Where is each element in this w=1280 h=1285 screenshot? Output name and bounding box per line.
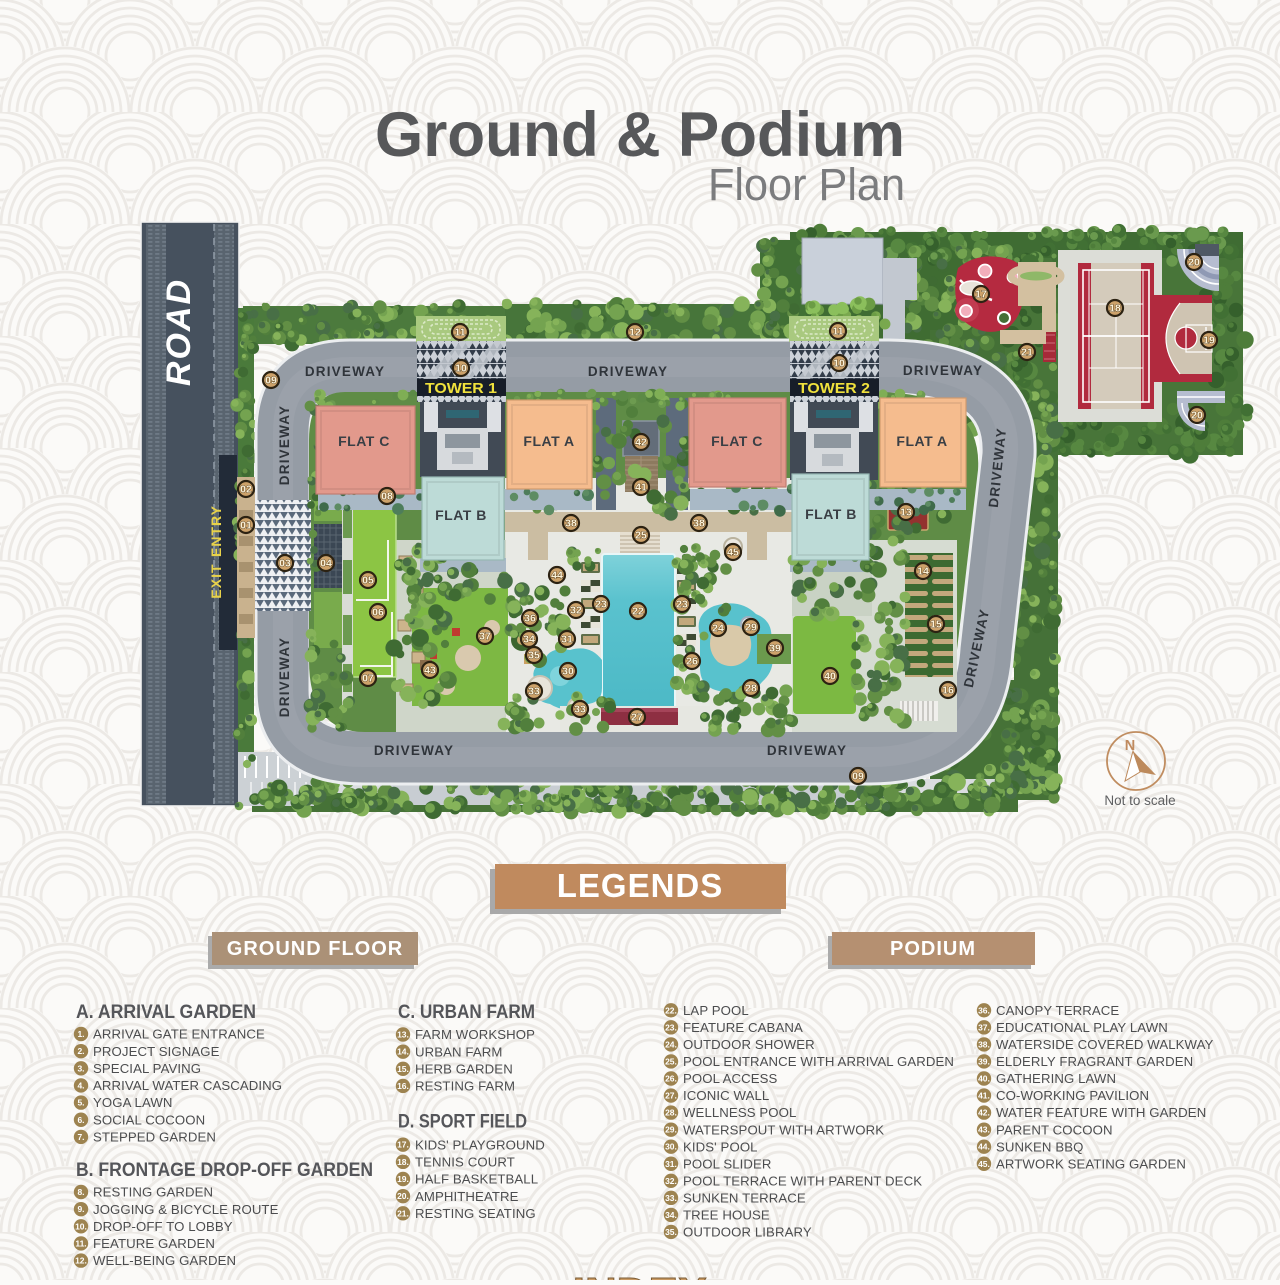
svg-text:GATHERING LAWN: GATHERING LAWN [996,1071,1116,1086]
svg-text:TREE HOUSE: TREE HOUSE [683,1208,770,1223]
svg-text:PARENT COCOON: PARENT COCOON [996,1122,1113,1137]
svg-text:EXIT: EXIT [208,563,224,598]
svg-text:ELDERLY FRAGRANT GARDEN: ELDERLY FRAGRANT GARDEN [996,1054,1193,1069]
svg-text:33: 33 [574,704,586,716]
svg-text:41.: 41. [978,1091,990,1101]
svg-text:ENTRY: ENTRY [208,505,224,557]
svg-text:33: 33 [528,686,540,698]
svg-text:41: 41 [635,482,647,494]
svg-text:28.: 28. [665,1108,677,1118]
svg-text:POOL SLIDER: POOL SLIDER [683,1156,772,1171]
svg-text:38.: 38. [978,1039,990,1049]
svg-text:27: 27 [631,712,643,724]
svg-text:WELLNESS POOL: WELLNESS POOL [683,1105,796,1120]
svg-text:ARRIVAL GATE ENTRANCE: ARRIVAL GATE ENTRANCE [93,1027,265,1042]
svg-text:B. FRONTAGE DROP-OFF GARDEN: B. FRONTAGE DROP-OFF GARDEN [76,1159,373,1181]
svg-text:HERB GARDEN: HERB GARDEN [415,1061,513,1076]
svg-text:FLAT B: FLAT B [805,506,857,522]
svg-text:30.: 30. [665,1142,677,1152]
svg-text:26.: 26. [665,1074,677,1084]
svg-text:KIDS' POOL: KIDS' POOL [683,1139,758,1154]
svg-text:42: 42 [635,437,647,449]
svg-text:FLAT A: FLAT A [896,433,947,449]
svg-text:22.: 22. [665,1005,677,1015]
svg-text:42.: 42. [978,1108,990,1118]
svg-text:13.: 13. [397,1030,409,1040]
svg-text:10: 10 [833,358,845,370]
svg-text:1.: 1. [77,1029,84,1039]
svg-text:19.: 19. [397,1174,409,1184]
svg-text:31.: 31. [665,1159,677,1169]
svg-text:DRIVEWAY: DRIVEWAY [277,637,292,717]
svg-text:POOL TERRACE WITH PARENT DECK: POOL TERRACE WITH PARENT DECK [683,1173,922,1188]
svg-text:17: 17 [975,289,987,301]
svg-text:KIDS' PLAYGROUND: KIDS' PLAYGROUND [415,1137,545,1152]
svg-text:PODIUM: PODIUM [890,938,976,960]
svg-text:WATERSPOUT WITH ARTWORK: WATERSPOUT WITH ARTWORK [683,1122,884,1137]
svg-text:36.: 36. [978,1005,990,1015]
svg-text:44: 44 [551,570,563,582]
svg-text:32.: 32. [665,1176,677,1186]
svg-text:21: 21 [1021,347,1033,359]
svg-text:45: 45 [727,547,739,559]
svg-text:SUNKEN TERRACE: SUNKEN TERRACE [683,1190,806,1205]
svg-text:PROJECT SIGNAGE: PROJECT SIGNAGE [93,1044,220,1059]
svg-text:28: 28 [745,683,757,695]
svg-text:23.: 23. [665,1022,677,1032]
svg-text:Not to scale: Not to scale [1104,793,1175,808]
svg-text:09: 09 [852,771,864,783]
svg-text:16.: 16. [397,1081,409,1091]
svg-text:DRIVEWAY: DRIVEWAY [903,363,983,378]
svg-text:HALF BASKETBALL: HALF BASKETBALL [415,1172,538,1187]
svg-text:37.: 37. [978,1022,990,1032]
svg-text:DRIVEWAY: DRIVEWAY [374,743,454,758]
svg-text:29: 29 [745,622,757,634]
svg-text:06: 06 [372,607,384,619]
svg-text:SOCIAL COCOON: SOCIAL COCOON [93,1112,205,1127]
svg-text:OUTDOOR SHOWER: OUTDOOR SHOWER [683,1037,815,1052]
svg-text:24: 24 [712,623,724,635]
svg-text:30: 30 [562,666,574,678]
svg-text:25.: 25. [665,1056,677,1066]
svg-text:AMPHITHEATRE: AMPHITHEATRE [415,1189,519,1204]
svg-text:20: 20 [1191,410,1203,422]
svg-text:DROP-OFF TO LOBBY: DROP-OFF TO LOBBY [93,1219,233,1234]
svg-text:39.: 39. [978,1056,990,1066]
svg-text:WELL-BEING GARDEN: WELL-BEING GARDEN [93,1253,236,1268]
svg-text:ICONIC WALL: ICONIC WALL [683,1088,769,1103]
svg-text:22: 22 [632,606,644,618]
svg-text:POOL ENTRANCE WITH ARRIVAL GAR: POOL ENTRANCE WITH ARRIVAL GARDEN [683,1054,954,1069]
svg-text:TENNIS COURT: TENNIS COURT [415,1154,515,1169]
svg-text:15: 15 [930,619,942,631]
svg-text:A. ARRIVAL GARDEN: A. ARRIVAL GARDEN [76,1001,256,1023]
svg-text:39: 39 [769,643,781,655]
svg-text:38: 38 [693,518,705,530]
svg-text:7.: 7. [77,1132,84,1142]
svg-text:23: 23 [595,599,607,611]
svg-text:31: 31 [561,634,573,646]
svg-text:LEGENDS: LEGENDS [557,867,724,904]
svg-text:45.: 45. [978,1159,990,1169]
svg-text:ROAD: ROAD [160,278,198,386]
svg-text:15.: 15. [397,1064,409,1074]
svg-text:FLAT C: FLAT C [338,433,390,449]
svg-text:Floor Plan: Floor Plan [708,159,905,210]
svg-text:WATERSIDE COVERED WALKWAY: WATERSIDE COVERED WALKWAY [996,1037,1214,1052]
svg-text:14.: 14. [397,1047,409,1057]
svg-text:LAP POOL: LAP POOL [683,1003,749,1018]
svg-text:02: 02 [240,484,252,496]
svg-text:SUNKEN BBQ: SUNKEN BBQ [996,1139,1083,1154]
svg-text:WATER FEATURE WITH GARDEN: WATER FEATURE WITH GARDEN [996,1105,1206,1120]
svg-text:18: 18 [1109,303,1121,315]
svg-text:9.: 9. [77,1204,84,1214]
svg-text:25: 25 [635,530,647,542]
svg-text:40.: 40. [978,1074,990,1084]
svg-text:RESTING GARDEN: RESTING GARDEN [93,1185,213,1200]
svg-text:01: 01 [240,520,252,532]
svg-text:FARM WORKSHOP: FARM WORKSHOP [415,1027,535,1042]
svg-text:10.: 10. [75,1221,87,1231]
svg-text:4.: 4. [77,1080,84,1090]
svg-text:GROUND FLOOR: GROUND FLOOR [227,938,403,960]
svg-text:8.: 8. [77,1187,84,1197]
svg-text:2.: 2. [77,1046,84,1056]
svg-text:33.: 33. [665,1193,677,1203]
svg-text:34.: 34. [665,1210,677,1220]
svg-text:ARRIVAL WATER CASCADING: ARRIVAL WATER CASCADING [93,1078,282,1093]
svg-text:38: 38 [565,518,577,530]
svg-text:DRIVEWAY: DRIVEWAY [277,405,292,485]
svg-text:11.: 11. [75,1238,86,1248]
svg-text:FLAT B: FLAT B [435,507,487,523]
svg-text:DRIVEWAY: DRIVEWAY [588,364,668,379]
svg-text:FEATURE CABANA: FEATURE CABANA [683,1020,803,1035]
svg-text:26: 26 [686,656,698,668]
svg-text:10: 10 [455,363,467,375]
svg-text:6.: 6. [77,1115,84,1125]
svg-text:14: 14 [917,566,929,578]
svg-text:D. SPORT FIELD: D. SPORT FIELD [398,1111,527,1133]
svg-text:20: 20 [1188,257,1200,269]
svg-text:URBAN FARM: URBAN FARM [415,1044,502,1059]
svg-text:04: 04 [320,558,332,570]
svg-text:5.: 5. [77,1098,84,1108]
svg-text:POOL ACCESS: POOL ACCESS [683,1071,778,1086]
svg-text:18.: 18. [397,1157,409,1167]
svg-text:13: 13 [900,507,912,519]
svg-text:34: 34 [523,634,535,646]
svg-text:ARTWORK SEATING GARDEN: ARTWORK SEATING GARDEN [996,1156,1186,1171]
svg-text:44.: 44. [978,1142,990,1152]
svg-text:12.: 12. [75,1256,87,1266]
svg-text:JOGGING & BICYCLE ROUTE: JOGGING & BICYCLE ROUTE [93,1202,279,1217]
svg-text:FLAT C: FLAT C [711,433,763,449]
svg-text:16: 16 [942,685,954,697]
svg-text:TOWER 2: TOWER 2 [798,380,870,397]
svg-text:37: 37 [479,631,491,643]
svg-text:19: 19 [1203,335,1215,347]
svg-text:08: 08 [381,491,393,503]
svg-text:43: 43 [424,665,436,677]
svg-text:STEPPED GARDEN: STEPPED GARDEN [93,1130,216,1145]
svg-text:29.: 29. [665,1125,677,1135]
svg-text:3.: 3. [77,1063,84,1073]
svg-text:DRIVEWAY: DRIVEWAY [767,743,847,758]
svg-text:23: 23 [676,599,688,611]
svg-text:27.: 27. [665,1091,677,1101]
svg-text:03: 03 [279,558,291,570]
svg-text:09: 09 [265,375,277,387]
svg-text:EDUCATIONAL PLAY LAWN: EDUCATIONAL PLAY LAWN [996,1020,1168,1035]
svg-text:FLAT A: FLAT A [523,433,574,449]
svg-text:05: 05 [362,575,374,587]
svg-text:OUTDOOR LIBRARY: OUTDOOR LIBRARY [683,1225,812,1240]
svg-text:TOWER 1: TOWER 1 [425,380,497,397]
svg-text:DRIVEWAY: DRIVEWAY [305,364,385,379]
svg-text:43.: 43. [978,1125,990,1135]
svg-text:11: 11 [454,327,465,339]
svg-text:07: 07 [362,673,374,685]
svg-text:INDEX: INDEX [573,1269,707,1280]
svg-text:36: 36 [524,613,536,625]
svg-text:RESTING FARM: RESTING FARM [415,1079,515,1094]
svg-text:20.: 20. [397,1191,409,1201]
svg-text:21.: 21. [397,1208,409,1218]
svg-text:35: 35 [528,650,540,662]
svg-text:FEATURE GARDEN: FEATURE GARDEN [93,1236,215,1251]
svg-text:11: 11 [832,326,843,338]
svg-text:12: 12 [629,327,641,339]
svg-text:SPECIAL PAVING: SPECIAL PAVING [93,1061,201,1076]
svg-text:C. URBAN FARM: C. URBAN FARM [398,1001,535,1023]
svg-text:17.: 17. [397,1140,409,1150]
svg-text:24.: 24. [665,1039,677,1049]
svg-text:32: 32 [570,605,582,617]
svg-text:RESTING SEATING: RESTING SEATING [415,1206,536,1221]
svg-text:CANOPY TERRACE: CANOPY TERRACE [996,1003,1119,1018]
svg-text:YOGA LAWN: YOGA LAWN [93,1095,173,1110]
svg-text:40: 40 [824,671,836,683]
svg-text:CO-WORKING PAVILION: CO-WORKING PAVILION [996,1088,1149,1103]
svg-text:35.: 35. [665,1227,677,1237]
